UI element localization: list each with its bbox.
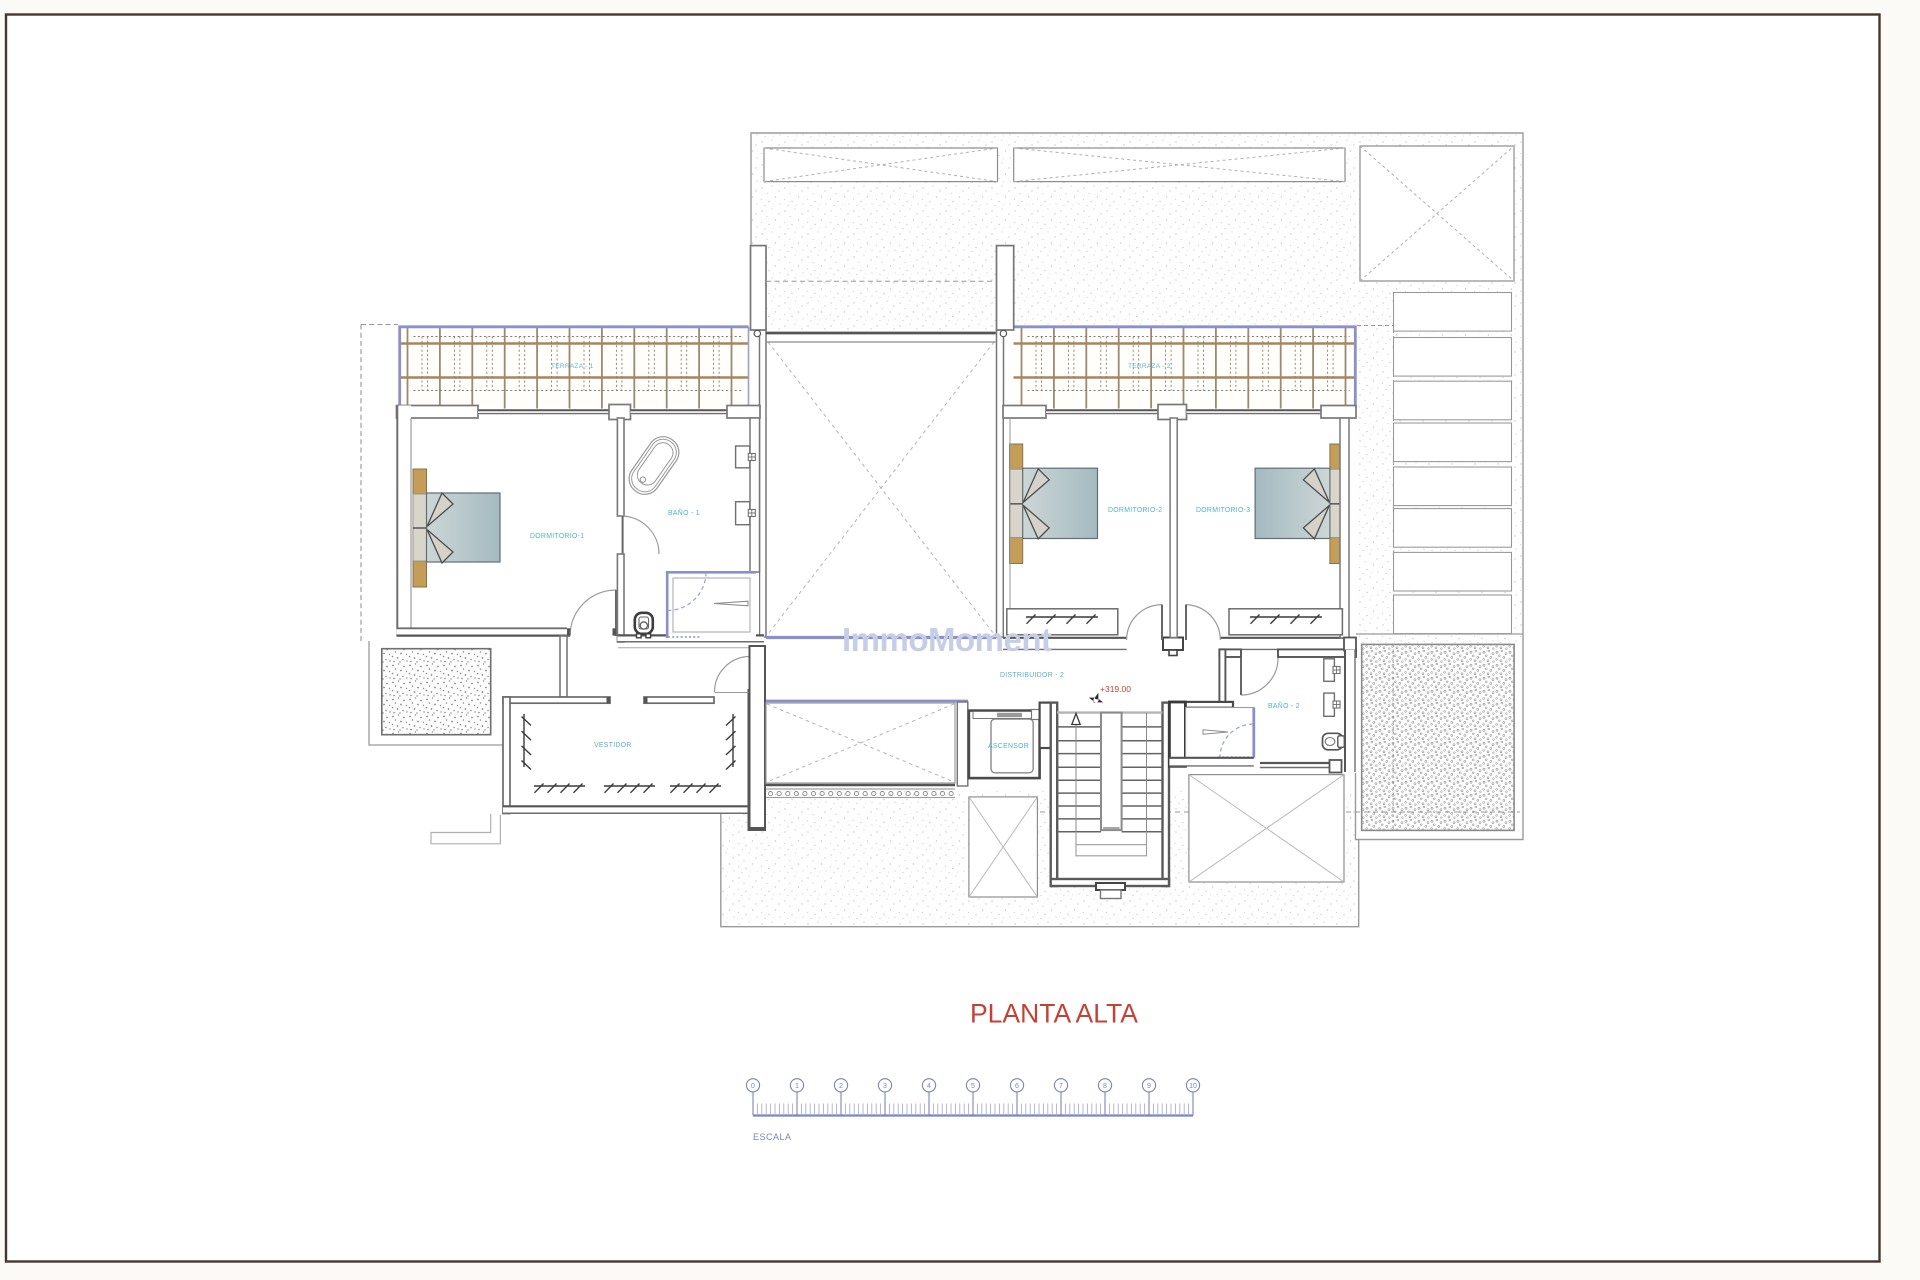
- svg-text:TERRAZA - 1: TERRAZA - 1: [551, 363, 594, 370]
- svg-text:BAÑO - 2: BAÑO - 2: [1268, 701, 1300, 710]
- svg-text:8: 8: [1103, 1083, 1107, 1090]
- svg-text:2: 2: [839, 1083, 843, 1090]
- svg-text:TERRAZA - 2: TERRAZA - 2: [1128, 363, 1171, 370]
- svg-text:1: 1: [795, 1083, 799, 1090]
- svg-text:DORMITORIO-2: DORMITORIO-2: [1108, 507, 1162, 514]
- svg-text:DORMITORIO-3: DORMITORIO-3: [1196, 507, 1250, 514]
- svg-text:ASCENSOR: ASCENSOR: [988, 743, 1029, 750]
- svg-text:5: 5: [971, 1083, 975, 1090]
- svg-text:10: 10: [1189, 1083, 1197, 1090]
- svg-text:ImmoMoment: ImmoMoment: [842, 621, 1052, 658]
- svg-text:ESCALA: ESCALA: [753, 1132, 792, 1142]
- svg-text:6: 6: [1015, 1083, 1019, 1090]
- svg-text:VESTIDOR: VESTIDOR: [594, 742, 632, 749]
- svg-text:DISTRIBUIDOR - 2: DISTRIBUIDOR - 2: [1000, 672, 1064, 679]
- svg-text:+319.00: +319.00: [1100, 684, 1131, 694]
- svg-text:3: 3: [883, 1083, 887, 1090]
- svg-text:0: 0: [751, 1083, 755, 1090]
- svg-text:PLANTA ALTA: PLANTA ALTA: [970, 999, 1138, 1029]
- svg-text:BAÑO - 1: BAÑO - 1: [668, 508, 700, 517]
- svg-text:9: 9: [1147, 1083, 1151, 1090]
- svg-text:7: 7: [1059, 1083, 1063, 1090]
- svg-text:DORMITORIO-1: DORMITORIO-1: [530, 533, 584, 540]
- svg-text:4: 4: [927, 1083, 931, 1090]
